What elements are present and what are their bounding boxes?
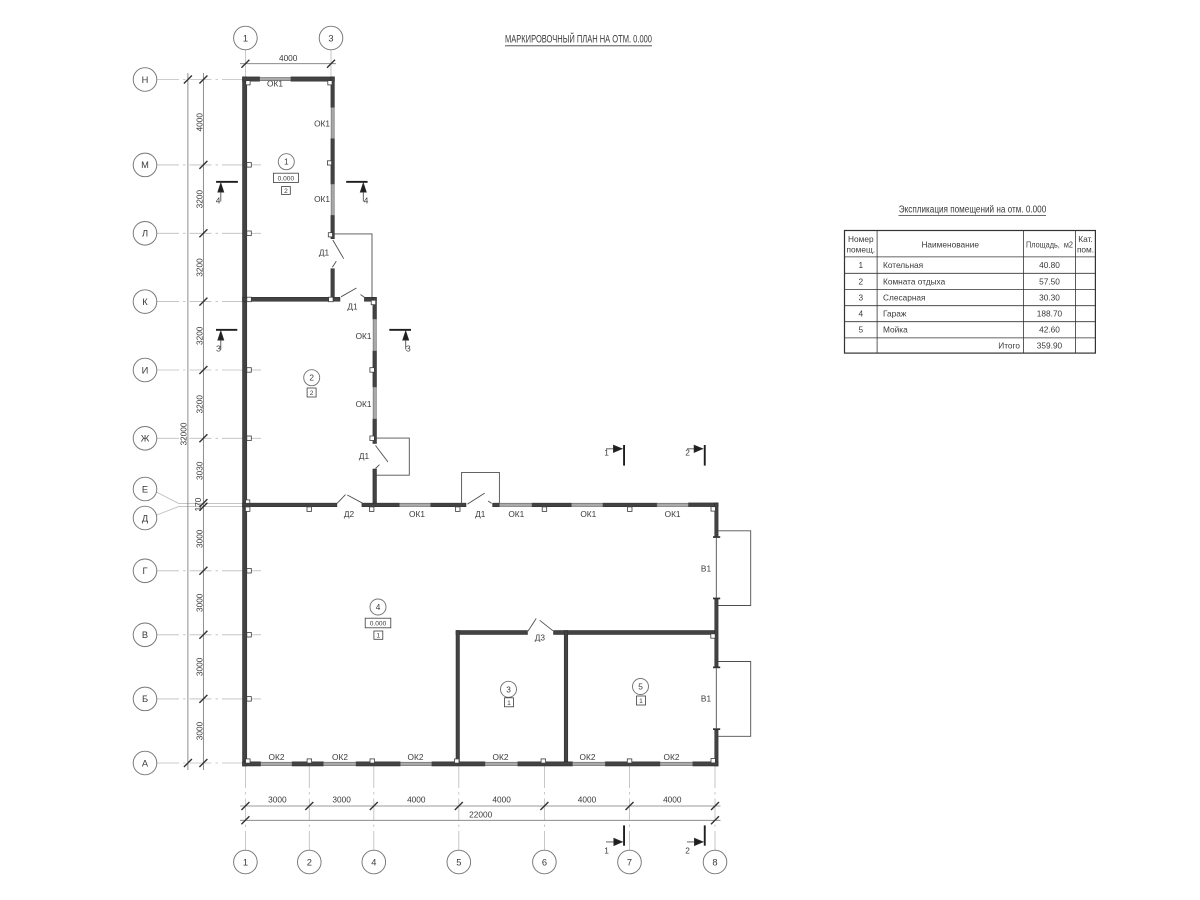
svg-text:З: З bbox=[406, 344, 411, 354]
svg-text:ОК1: ОК1 bbox=[314, 119, 330, 129]
svg-text:Гараж: Гараж bbox=[883, 309, 907, 319]
svg-text:1: 1 bbox=[639, 698, 643, 705]
svg-text:6: 6 bbox=[542, 857, 547, 867]
svg-text:40.80: 40.80 bbox=[1039, 260, 1060, 270]
svg-text:4000: 4000 bbox=[578, 795, 597, 805]
svg-text:188.70: 188.70 bbox=[1037, 309, 1063, 319]
svg-text:В: В bbox=[142, 630, 148, 640]
svg-text:ОК1: ОК1 bbox=[665, 509, 681, 519]
svg-text:3030: 3030 bbox=[195, 461, 205, 480]
svg-text:3: 3 bbox=[328, 33, 333, 43]
svg-text:4000: 4000 bbox=[279, 53, 298, 63]
svg-text:Котельная: Котельная bbox=[883, 260, 923, 270]
svg-text:30.30: 30.30 bbox=[1039, 293, 1060, 303]
svg-text:Д2: Д2 bbox=[344, 509, 355, 519]
svg-text:ОК2: ОК2 bbox=[580, 752, 596, 762]
svg-text:7: 7 bbox=[627, 857, 632, 867]
svg-text:ОК1: ОК1 bbox=[267, 78, 283, 88]
svg-text:ОК1: ОК1 bbox=[409, 509, 425, 519]
svg-text:3: 3 bbox=[506, 684, 511, 694]
svg-text:Б: Б bbox=[142, 694, 148, 704]
svg-text:ОК1: ОК1 bbox=[356, 399, 372, 409]
svg-text:МАРКИРОВОЧНЫЙ ПЛАН НА ОТМ. 0.0: МАРКИРОВОЧНЫЙ ПЛАН НА ОТМ. 0.000 bbox=[505, 33, 652, 46]
svg-text:32000: 32000 bbox=[179, 422, 189, 445]
svg-text:57.50: 57.50 bbox=[1039, 276, 1060, 286]
svg-text:170: 170 bbox=[193, 497, 203, 511]
svg-text:1: 1 bbox=[604, 448, 609, 458]
svg-text:З: З bbox=[216, 344, 221, 354]
svg-text:Е: Е bbox=[142, 484, 148, 494]
svg-text:2: 2 bbox=[309, 373, 314, 383]
svg-text:3000: 3000 bbox=[195, 657, 205, 676]
svg-text:Слесарная: Слесарная bbox=[883, 293, 926, 303]
svg-text:Д1: Д1 bbox=[475, 509, 486, 519]
svg-text:Л: Л bbox=[142, 229, 148, 239]
svg-text:2: 2 bbox=[685, 846, 690, 856]
svg-text:4000: 4000 bbox=[195, 113, 205, 132]
svg-text:4000: 4000 bbox=[407, 795, 426, 805]
svg-text:помещ.: помещ. bbox=[847, 245, 876, 255]
svg-text:пом.: пом. bbox=[1077, 245, 1094, 255]
svg-text:А: А bbox=[142, 758, 149, 768]
svg-text:Номер: Номер bbox=[848, 234, 874, 244]
svg-text:Кат.: Кат. bbox=[1078, 234, 1092, 244]
svg-text:3200: 3200 bbox=[195, 326, 205, 345]
svg-text:М: М bbox=[141, 160, 149, 170]
svg-text:3200: 3200 bbox=[195, 189, 205, 208]
svg-text:22000: 22000 bbox=[469, 810, 492, 820]
svg-text:5: 5 bbox=[456, 857, 461, 867]
svg-text:В1: В1 bbox=[701, 563, 712, 573]
svg-text:1: 1 bbox=[376, 633, 380, 640]
svg-text:ОК2: ОК2 bbox=[269, 752, 285, 762]
svg-text:3: 3 bbox=[858, 293, 863, 303]
svg-text:4000: 4000 bbox=[663, 795, 682, 805]
svg-text:ОК1: ОК1 bbox=[356, 331, 372, 341]
svg-text:Площадь, м2: Площадь, м2 bbox=[1026, 240, 1073, 250]
svg-text:И: И bbox=[142, 365, 149, 375]
svg-text:ОК1: ОК1 bbox=[314, 194, 330, 204]
svg-text:3000: 3000 bbox=[195, 721, 205, 740]
svg-text:ОК2: ОК2 bbox=[332, 752, 348, 762]
svg-text:ОК2: ОК2 bbox=[493, 752, 509, 762]
svg-text:ОК2: ОК2 bbox=[408, 752, 424, 762]
svg-text:4000: 4000 bbox=[492, 795, 511, 805]
svg-text:2: 2 bbox=[307, 857, 312, 867]
svg-text:4: 4 bbox=[376, 602, 381, 612]
svg-text:Н: Н bbox=[142, 75, 149, 85]
svg-text:2: 2 bbox=[685, 448, 690, 458]
svg-text:Г: Г bbox=[142, 566, 147, 576]
svg-text:ОК1: ОК1 bbox=[580, 509, 596, 519]
svg-text:1: 1 bbox=[284, 157, 289, 167]
svg-text:Итого: Итого bbox=[998, 341, 1020, 351]
svg-text:ОК1: ОК1 bbox=[508, 509, 524, 519]
svg-text:1: 1 bbox=[858, 260, 863, 270]
svg-text:Мойка: Мойка bbox=[883, 325, 908, 335]
svg-text:Д: Д bbox=[142, 513, 149, 523]
svg-text:Д1: Д1 bbox=[347, 301, 358, 311]
svg-text:8: 8 bbox=[712, 857, 717, 867]
svg-text:1: 1 bbox=[243, 857, 248, 867]
svg-text:ОК2: ОК2 bbox=[664, 752, 680, 762]
svg-text:0.000: 0.000 bbox=[278, 175, 295, 182]
svg-text:0.000: 0.000 bbox=[370, 621, 387, 628]
svg-text:3200: 3200 bbox=[195, 395, 205, 414]
svg-text:1: 1 bbox=[243, 33, 248, 43]
svg-text:2: 2 bbox=[858, 276, 863, 286]
svg-text:Наименование: Наименование bbox=[921, 240, 979, 250]
svg-text:3000: 3000 bbox=[332, 795, 351, 805]
svg-text:3000: 3000 bbox=[195, 529, 205, 548]
svg-text:3000: 3000 bbox=[195, 593, 205, 612]
svg-text:1: 1 bbox=[604, 846, 609, 856]
svg-text:359.90: 359.90 bbox=[1037, 341, 1063, 351]
svg-text:4: 4 bbox=[216, 196, 221, 206]
svg-text:В1: В1 bbox=[701, 693, 712, 703]
svg-text:1: 1 bbox=[507, 700, 511, 707]
svg-text:5: 5 bbox=[858, 325, 863, 335]
svg-text:Экспликация помещений на отм.: Экспликация помещений на отм. 0.000 bbox=[899, 205, 1047, 216]
svg-text:Комната отдыха: Комната отдыха bbox=[883, 276, 946, 286]
svg-text:2: 2 bbox=[310, 390, 314, 397]
svg-text:Д3: Д3 bbox=[535, 633, 546, 643]
svg-text:К: К bbox=[142, 297, 148, 307]
svg-text:Ж: Ж bbox=[141, 434, 150, 444]
svg-text:4: 4 bbox=[364, 196, 369, 206]
svg-text:3000: 3000 bbox=[268, 795, 287, 805]
svg-text:4: 4 bbox=[858, 309, 863, 319]
svg-text:3200: 3200 bbox=[195, 258, 205, 277]
svg-text:2: 2 bbox=[284, 188, 288, 195]
svg-text:Д1: Д1 bbox=[319, 247, 330, 257]
svg-text:42.60: 42.60 bbox=[1039, 325, 1060, 335]
svg-text:5: 5 bbox=[638, 682, 643, 692]
svg-text:Д1: Д1 bbox=[359, 451, 370, 461]
svg-text:4: 4 bbox=[371, 857, 376, 867]
